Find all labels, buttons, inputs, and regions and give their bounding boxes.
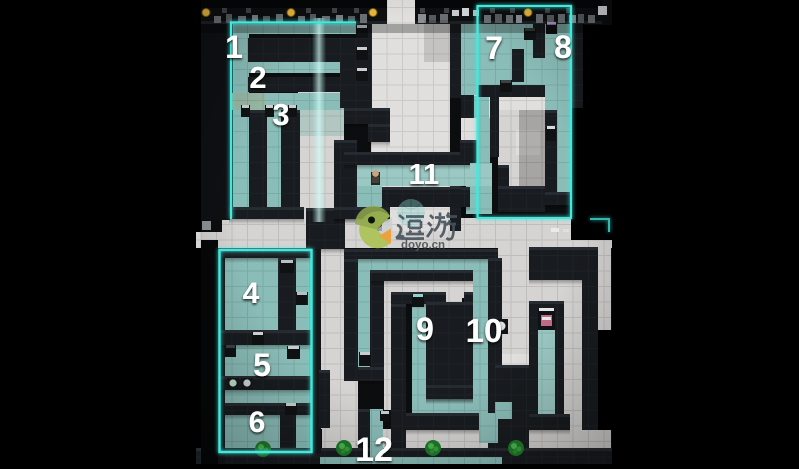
svg-text:1: 1	[225, 29, 243, 65]
svg-text:6: 6	[249, 406, 266, 439]
svg-text:11: 11	[409, 159, 440, 191]
svg-text:3: 3	[272, 97, 289, 132]
svg-text:8: 8	[554, 29, 572, 65]
svg-text:12: 12	[355, 431, 393, 464]
svg-text:2: 2	[249, 60, 266, 95]
svg-text:5: 5	[253, 347, 271, 383]
svg-text:doyo.cn: doyo.cn	[401, 240, 445, 252]
svg-text:4: 4	[243, 277, 260, 310]
svg-text:7: 7	[485, 30, 503, 66]
svg-text:10: 10	[466, 312, 503, 349]
svg-text:9: 9	[416, 311, 434, 347]
